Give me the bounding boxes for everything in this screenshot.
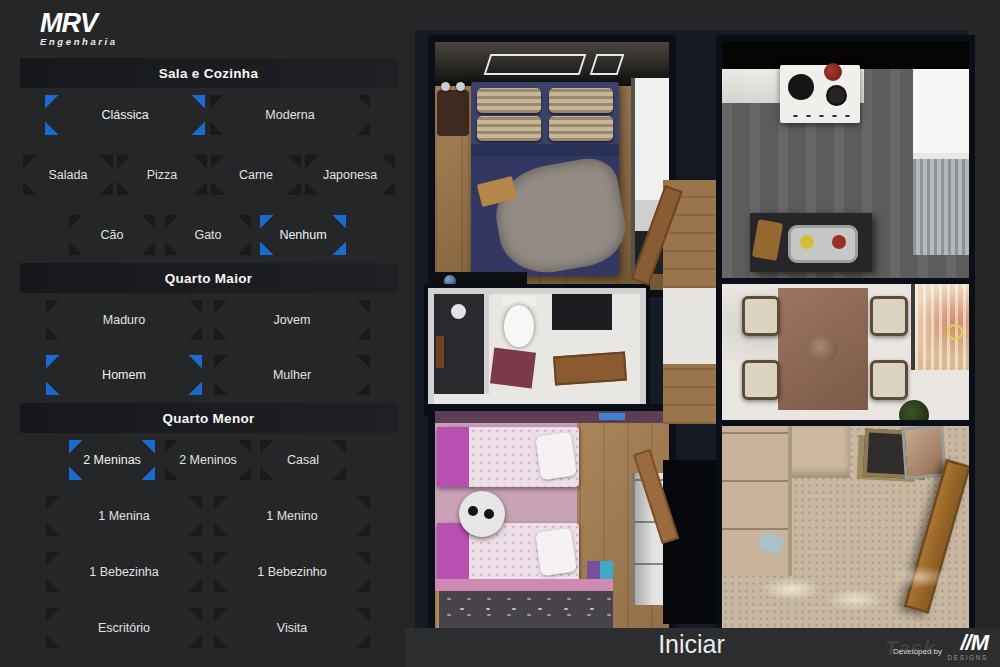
im-designs-logo: //M: [960, 633, 988, 653]
option-label: Casal: [287, 453, 319, 467]
option-label: Mulher: [273, 368, 311, 382]
option-label: Jovem: [274, 313, 311, 327]
dining-chair: [742, 296, 780, 336]
option-1-bebezinho[interactable]: 1 Bebezinho: [214, 552, 370, 592]
option-label: Moderna: [265, 108, 314, 122]
bathroom-divider-wall: [484, 294, 489, 394]
bathroom-mat: [490, 348, 536, 389]
kids-toy-boxes: [587, 561, 613, 581]
stove-burner: [826, 85, 847, 106]
option-label: Carne: [239, 168, 273, 182]
bathroom-shower-head: [451, 304, 466, 319]
option-carne[interactable]: Carne: [211, 155, 301, 195]
dining-centerpiece: [808, 336, 838, 362]
bed-gray-blanket: [489, 154, 631, 280]
window-light: [947, 324, 963, 340]
bedroom-nightstand: [437, 90, 469, 136]
option-mulher[interactable]: Mulher: [214, 355, 370, 395]
section-header-quarto-maior: Quarto Maior: [20, 263, 397, 293]
option-label: Gato: [194, 228, 221, 242]
bathroom-towel: [436, 336, 444, 368]
bedroom-lamp: [456, 82, 465, 91]
option-label: Maduro: [103, 313, 145, 327]
option-salada[interactable]: Salada: [23, 155, 113, 195]
bathroom-sink: [568, 299, 595, 326]
option-cao[interactable]: Cão: [69, 215, 155, 255]
option-label: Pizza: [147, 168, 178, 182]
section-header-sala-cozinha: Sala e Cozinha: [20, 58, 397, 88]
kids-bed: [437, 523, 579, 583]
bed-pillow: [477, 88, 541, 113]
kids-panda-toy: [468, 506, 478, 516]
bed-duvet-fold: [471, 144, 619, 156]
bedroom-globe: [444, 275, 456, 287]
kids-room-wall: [435, 411, 669, 423]
sink-bowl: [800, 235, 814, 249]
bed-pillow: [477, 116, 541, 141]
option-moderna[interactable]: Moderna: [210, 95, 370, 135]
stove-knobs: [789, 113, 855, 119]
cutting-board: [752, 219, 783, 261]
developed-by-label: Developed by: [893, 647, 942, 656]
hallway-floor: [663, 288, 716, 364]
kids-bed-blanket: [437, 427, 469, 487]
sink-bowl: [832, 235, 846, 249]
bathroom-toilet: [504, 305, 534, 347]
option-casal[interactable]: Casal: [260, 440, 346, 480]
option-1-menina[interactable]: 1 Menina: [46, 496, 202, 536]
hallway-dark-void: [663, 460, 716, 624]
kids-room-pink-strip: [435, 579, 613, 591]
bedroom-lamp: [441, 82, 450, 91]
option-2-meninos[interactable]: 2 Meninos: [165, 440, 251, 480]
option-japonesa[interactable]: Japonesa: [305, 155, 395, 195]
bed-pillow: [549, 116, 613, 141]
option-label: Cão: [101, 228, 124, 242]
room-bathroom: [428, 288, 646, 412]
option-label: 2 Meninas: [83, 453, 141, 467]
kids-bed-blanket: [437, 523, 469, 583]
im-designs-sublabel: DESIGNS: [948, 654, 988, 661]
room-living-entry: [716, 420, 975, 636]
option-label: Homem: [102, 368, 146, 382]
bed-pillow: [549, 88, 613, 113]
option-label: Japonesa: [323, 168, 377, 182]
option-label: Salada: [49, 168, 88, 182]
kitchen-island: [750, 213, 872, 272]
kids-bed-pillow: [535, 528, 577, 577]
room-kids-bedroom: [428, 404, 676, 638]
bathroom-bench: [553, 352, 627, 386]
option-classica[interactable]: Clássica: [45, 95, 205, 135]
option-label: 1 Bebezinha: [89, 565, 159, 579]
bedroom-wall-decor: [484, 54, 587, 75]
app-window: MRV Engenharia Sala e Cozinha Clássica M…: [0, 0, 1000, 667]
kitchen-stove: [780, 65, 860, 123]
option-pizza[interactable]: Pizza: [117, 155, 207, 195]
option-label: 1 Menina: [98, 509, 149, 523]
floorplan-render: [415, 30, 968, 628]
kids-round-table: [459, 491, 505, 537]
mrv-logo-text: MRV: [40, 10, 118, 36]
dining-table: [778, 288, 868, 410]
stove-red-pot: [824, 63, 842, 81]
kids-room-books: [599, 413, 625, 420]
leaning-portrait: [901, 425, 947, 480]
kids-bed: [437, 427, 579, 487]
option-1-bebezinha[interactable]: 1 Bebezinha: [46, 552, 202, 592]
option-label: Nenhum: [279, 228, 326, 242]
kids-star-rug: [439, 591, 613, 631]
option-label: 2 Meninos: [179, 453, 237, 467]
option-label: 1 Menino: [266, 509, 317, 523]
option-escritorio[interactable]: Escritório: [46, 608, 202, 648]
dining-window: [911, 284, 969, 370]
sofa: [722, 426, 792, 576]
dining-chair: [870, 360, 908, 400]
section-header-quarto-menor: Quarto Menor: [20, 403, 397, 433]
option-label: Clássica: [101, 108, 148, 122]
dining-chair: [870, 296, 908, 336]
option-label: Visita: [277, 621, 307, 635]
stove-burner: [788, 74, 814, 100]
bedroom-double-bed: [471, 82, 619, 276]
room-dining: [716, 278, 975, 432]
mrv-logo-subtitle: Engenharia: [40, 36, 118, 47]
hallway-wood-floor: [663, 364, 716, 424]
option-label: Escritório: [98, 621, 150, 635]
room-kitchen: [716, 35, 975, 290]
option-1-menino[interactable]: 1 Menino: [214, 496, 370, 536]
option-jovem[interactable]: Jovem: [214, 300, 370, 340]
dining-chair: [742, 360, 780, 400]
option-homem[interactable]: Homem: [46, 355, 202, 395]
mrv-logo: MRV Engenharia: [40, 10, 118, 47]
entry-door: [904, 459, 971, 614]
kitchen-window-blinds: [913, 159, 969, 255]
option-maduro[interactable]: Maduro: [46, 300, 202, 340]
kitchen-sink: [788, 225, 858, 263]
option-2-meninas[interactable]: 2 Meninas: [69, 440, 155, 480]
option-nenhum[interactable]: Nenhum: [260, 215, 346, 255]
kids-bed-pillow: [535, 432, 577, 481]
option-visita[interactable]: Visita: [214, 608, 370, 648]
option-gato[interactable]: Gato: [165, 215, 251, 255]
option-label: 1 Bebezinho: [257, 565, 327, 579]
